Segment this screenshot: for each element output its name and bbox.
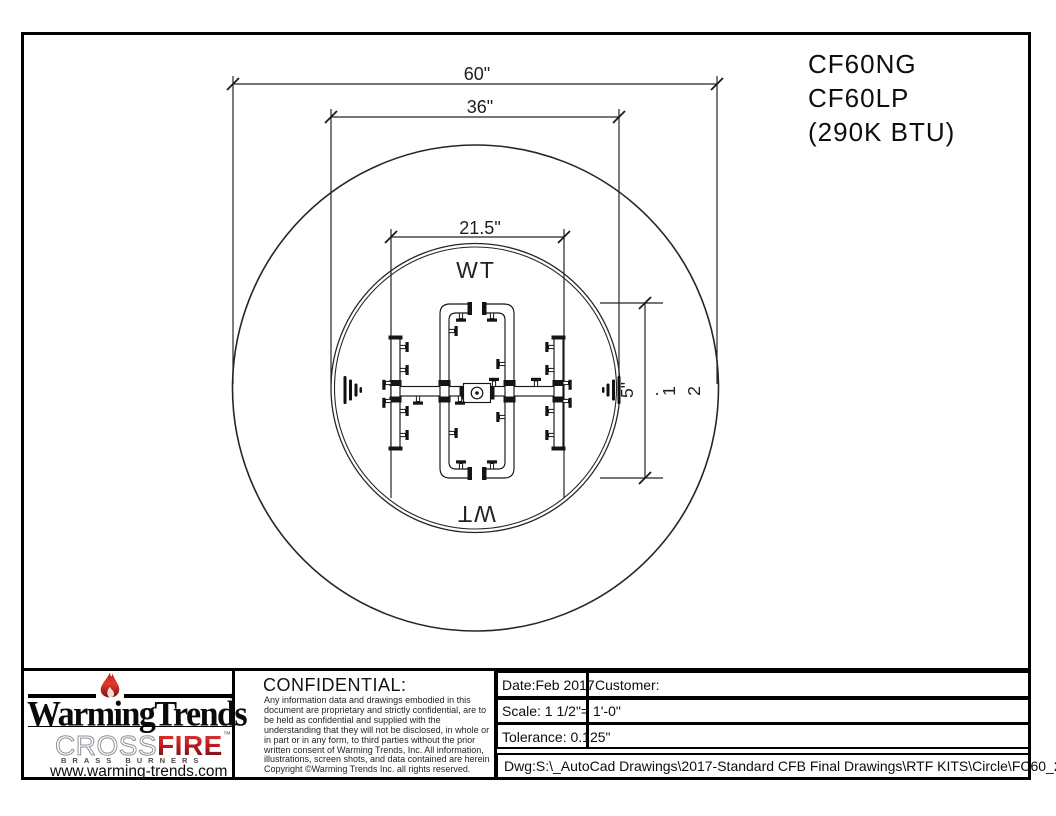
confidential-heading: CONFIDENTIAL: bbox=[263, 675, 407, 696]
dim-burner-height-char-4: 2 bbox=[682, 379, 706, 403]
confidential-cell: CONFIDENTIAL: Any information data and d… bbox=[235, 670, 494, 778]
customer-field: Customer: bbox=[595, 676, 660, 694]
brand-wordmark: WarmingTrends bbox=[27, 695, 246, 735]
trademark-mark: ™ bbox=[223, 730, 232, 739]
dim-burner-height-char-1: 5" bbox=[615, 378, 639, 402]
registered-mark: ® bbox=[229, 694, 234, 701]
dim-outer-diameter-label: 60" bbox=[464, 64, 490, 85]
confidential-body: Any information data and drawings embodi… bbox=[264, 696, 496, 775]
website-url: www.warming-trends.com bbox=[50, 763, 227, 781]
wt-mark-top: WT bbox=[456, 257, 496, 284]
product-title: CF60NG CF60LP (290K BTU) bbox=[808, 47, 955, 149]
dwg-path-field: Dwg:S:\_AutoCad Drawings\2017-Standard C… bbox=[504, 758, 1056, 774]
tolerance-cell-right bbox=[586, 723, 1031, 749]
logo-cell: WarmingTrends ® CROSSFIRE™ BRASS BURNERS… bbox=[21, 670, 232, 778]
dim-burner-height-char-3: 1 bbox=[657, 379, 681, 403]
product-btu: (290K BTU) bbox=[808, 115, 955, 149]
scale-cell-right bbox=[586, 698, 1031, 724]
tolerance-field: Tolerance: 0.125" bbox=[502, 728, 611, 746]
scale-field: Scale: 1 1/2"= 1'-0" bbox=[502, 702, 621, 720]
wordmark-underline bbox=[28, 726, 232, 728]
wt-mark-bottom: WT bbox=[456, 500, 496, 527]
product-model-lp: CF60LP bbox=[808, 81, 955, 115]
product-model-ng: CF60NG bbox=[808, 47, 955, 81]
burner-assembly bbox=[382, 302, 571, 480]
date-field: Date:Feb 2017 bbox=[502, 676, 595, 694]
drawing-sheet: CF60NG CF60LP (290K BTU) 60" 36" 21.5" W… bbox=[0, 0, 1056, 816]
dim-inner-diameter-label: 36" bbox=[467, 97, 493, 118]
jet-cluster-left bbox=[344, 376, 363, 404]
dimension-lines bbox=[233, 76, 717, 498]
dim-burner-width-label: 21.5" bbox=[459, 218, 500, 239]
